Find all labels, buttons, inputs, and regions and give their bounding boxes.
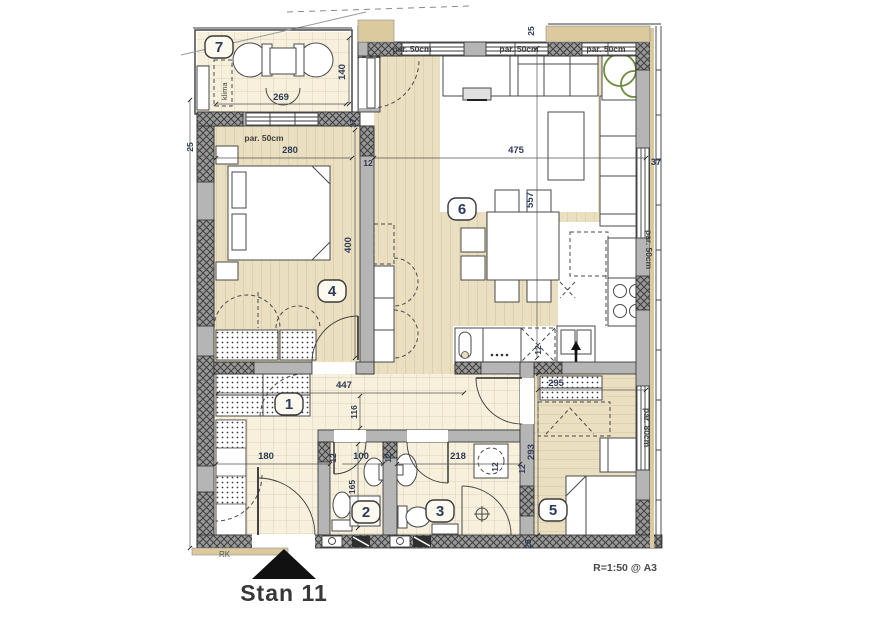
toilet-tank xyxy=(332,520,352,531)
room-badge-2: 2 xyxy=(352,501,380,523)
double-bed xyxy=(228,166,330,260)
svg-text:4: 4 xyxy=(328,283,337,300)
dining-chair xyxy=(461,256,485,280)
svg-text:1: 1 xyxy=(285,396,293,413)
parapet-label: par. 50cm xyxy=(586,44,626,54)
passage-floor xyxy=(374,362,455,374)
dim-12: 12 xyxy=(490,462,500,472)
living-side-window xyxy=(637,148,649,238)
facade-strip xyxy=(192,548,288,555)
dining-chair xyxy=(527,280,551,302)
bath-cabinet xyxy=(432,524,458,534)
parapet-label: par. 50cm xyxy=(644,230,654,270)
room-badge-1: 1 xyxy=(275,393,303,415)
dim-37: 37 xyxy=(651,157,662,168)
dim-475: 475 xyxy=(508,145,525,156)
boundary-dashed-line xyxy=(287,6,470,12)
dim-218: 218 xyxy=(450,451,466,462)
svg-text:5: 5 xyxy=(549,502,557,519)
footer: Stan 11 R=1:50 @ A3 xyxy=(240,549,657,606)
parapet-label: par. 50cm xyxy=(244,133,284,143)
dim-400: 400 xyxy=(343,237,354,253)
dim-557: 557 xyxy=(525,192,536,208)
parapet-label: par. 80cm xyxy=(642,408,652,448)
dim-25: 25 xyxy=(185,142,195,152)
parapet-label: par. 50cm xyxy=(499,44,539,54)
dim-37: 37 xyxy=(348,118,358,128)
floor-plan-drawing: 269 140 280 400 475 557 447 116 180 100 … xyxy=(0,0,873,617)
room-badge-3: 3 xyxy=(426,500,454,522)
dim-12: 12 xyxy=(328,453,338,463)
klima-label: klima xyxy=(220,82,229,100)
plan-title: Stan 11 xyxy=(240,580,328,606)
dim-25: 25 xyxy=(526,26,536,36)
dim-295: 295 xyxy=(548,378,565,389)
dim-25: 25 xyxy=(523,539,533,549)
dim-12: 12 xyxy=(383,453,393,463)
entrance-opening xyxy=(252,534,315,549)
room-badge-6: 6 xyxy=(448,198,476,220)
dim-116: 116 xyxy=(349,405,359,419)
facade-strip xyxy=(650,28,654,548)
dining-chair xyxy=(461,228,485,252)
shelf xyxy=(374,266,394,298)
dining-chair xyxy=(495,280,519,302)
single-bed xyxy=(566,476,646,536)
facade-strip xyxy=(546,26,650,42)
floor-plan-page: 269 140 280 400 475 557 447 116 180 100 … xyxy=(0,0,873,617)
dim-140: 140 xyxy=(337,64,348,80)
ac-outdoor-unit xyxy=(197,66,209,110)
room-badge-4: 4 xyxy=(318,280,346,302)
tv xyxy=(463,88,491,100)
toilet xyxy=(333,492,351,518)
scale-note: R=1:50 @ A3 xyxy=(593,562,657,574)
room-badge-5: 5 xyxy=(539,499,567,521)
wardrobe xyxy=(280,330,316,360)
nightstand xyxy=(216,146,238,164)
dim-293: 293 xyxy=(526,444,537,460)
facade-strip xyxy=(358,20,394,42)
dim-12: 12 xyxy=(517,464,527,474)
balcony-door-leaf xyxy=(367,58,375,108)
shelf xyxy=(374,298,394,330)
svg-text:3: 3 xyxy=(436,503,444,520)
nightstand xyxy=(216,262,238,280)
dim-180: 180 xyxy=(258,451,274,462)
washing-machine xyxy=(474,444,508,478)
parapet-label: par. 50cm xyxy=(392,44,432,54)
sofa-top xyxy=(518,56,598,96)
sofa-armrest xyxy=(510,56,518,96)
dim-100: 100 xyxy=(353,451,369,462)
dining-chair xyxy=(495,190,519,212)
wardrobe xyxy=(216,330,278,360)
dim-165: 165 xyxy=(347,480,357,494)
shelf xyxy=(374,330,394,362)
balcony-table xyxy=(270,48,296,74)
dim-447: 447 xyxy=(336,380,352,391)
dining-table xyxy=(487,212,559,280)
kitchen-counter xyxy=(483,328,521,362)
coffee-table xyxy=(548,112,584,180)
svg-text:7: 7 xyxy=(215,39,223,56)
room-badge-7: 7 xyxy=(205,36,233,58)
dim-12: 12 xyxy=(533,345,543,355)
svg-text:6: 6 xyxy=(458,201,466,218)
svg-text:2: 2 xyxy=(362,504,370,521)
rk-label: RK xyxy=(219,550,231,559)
dim-280: 280 xyxy=(282,145,298,156)
dim-12: 12 xyxy=(363,158,373,168)
dim-269: 269 xyxy=(273,92,289,103)
bedroom-window xyxy=(246,113,318,125)
